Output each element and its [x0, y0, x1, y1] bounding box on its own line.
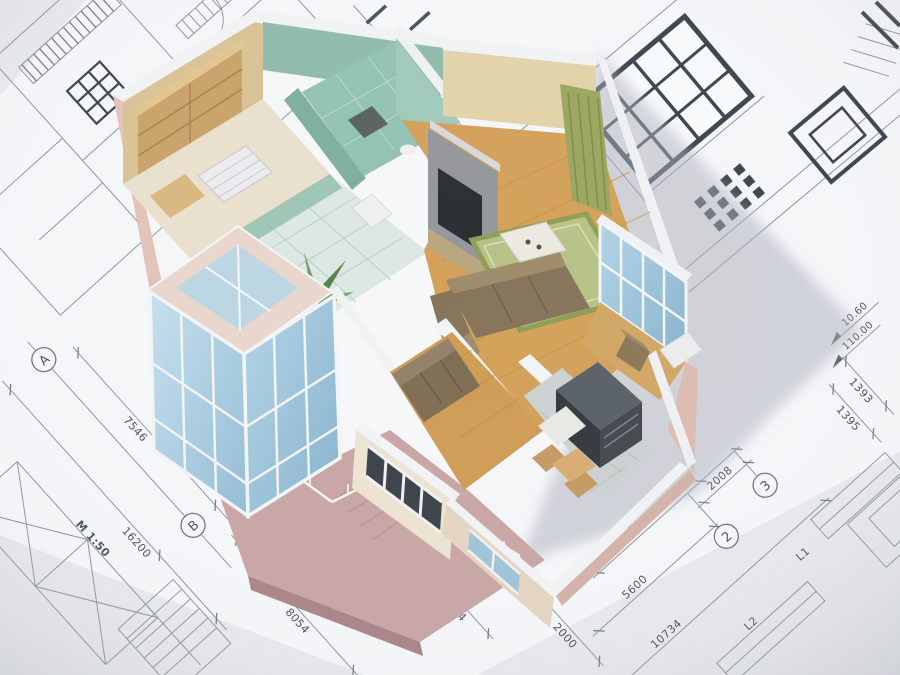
scene-canvas: A B 4 2 3 16200 7546 7141 8054 3734 2000… — [0, 0, 900, 675]
architectural-render: A B 4 2 3 16200 7546 7141 8054 3734 2000… — [0, 0, 900, 675]
vignette-overlay — [0, 0, 900, 675]
